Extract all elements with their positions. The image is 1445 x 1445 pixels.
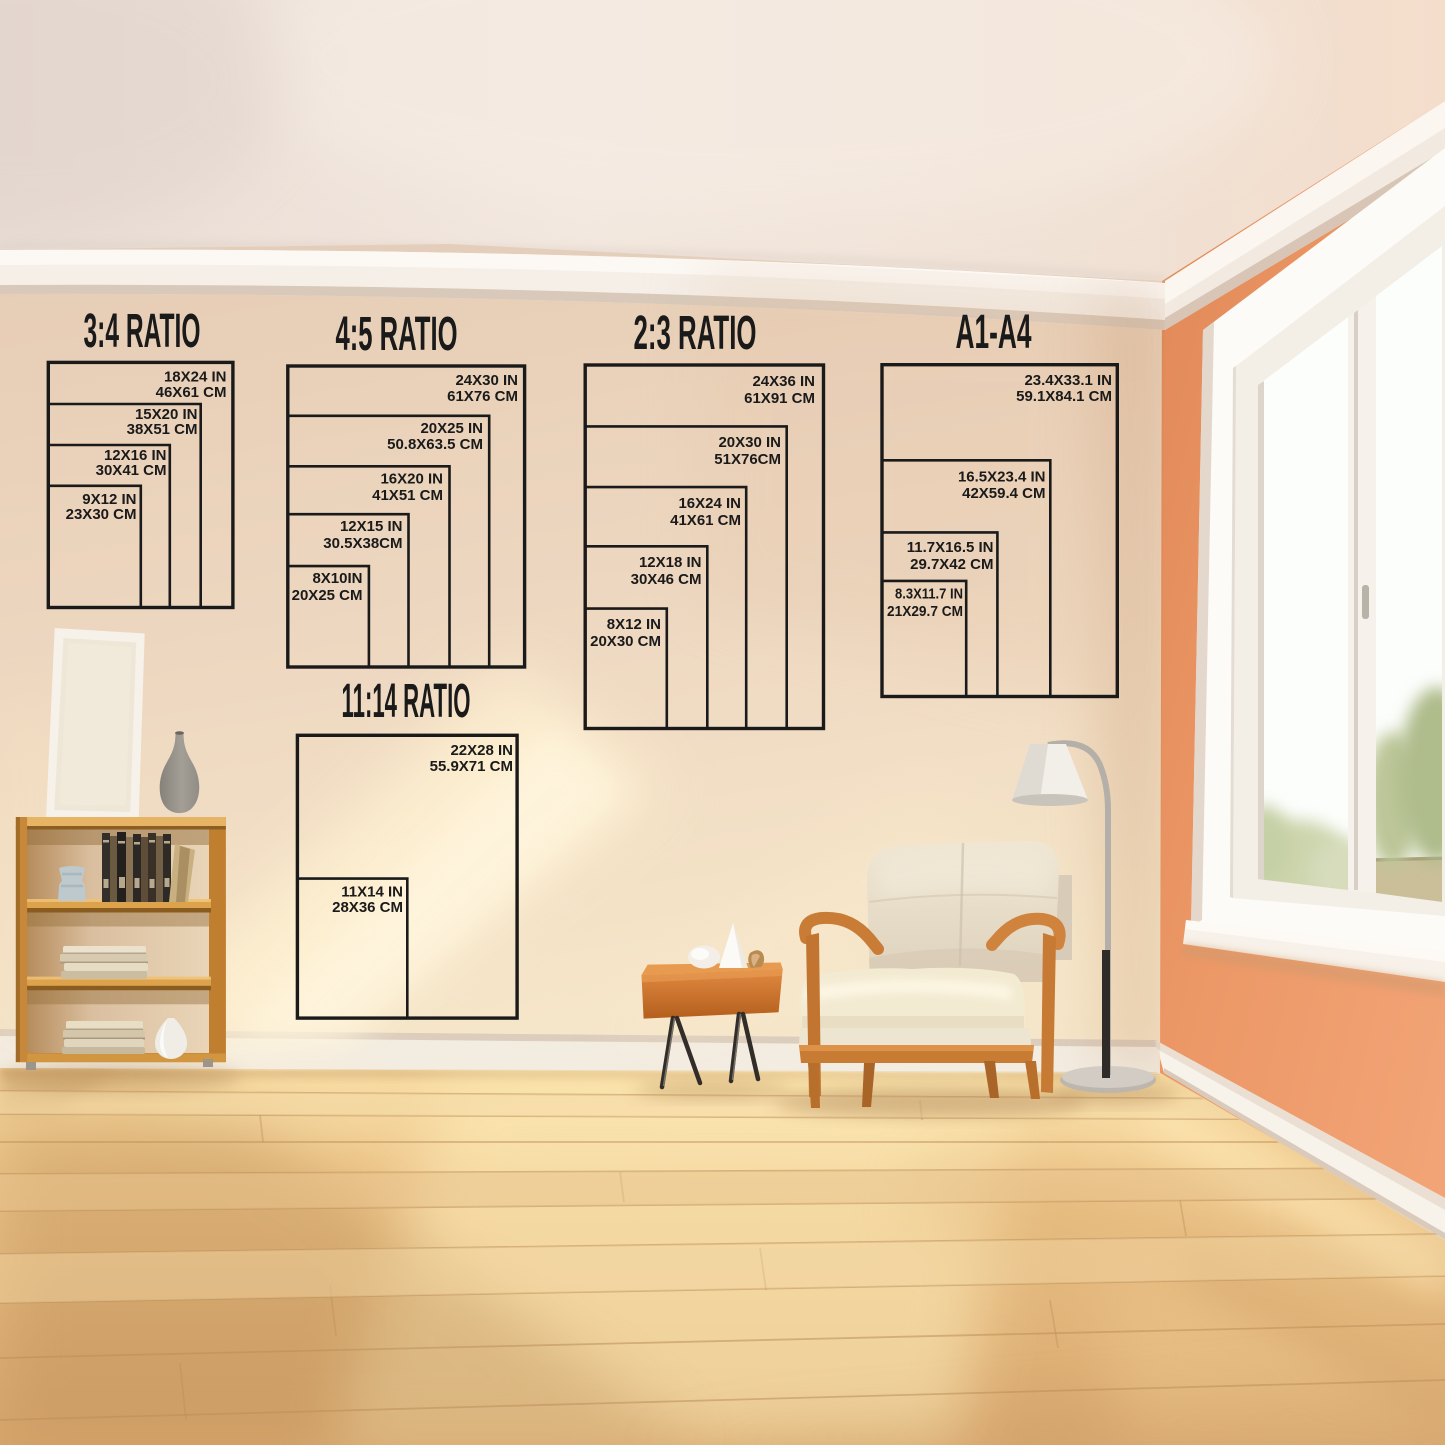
svg-text:51X76CM: 51X76CM [714,451,781,468]
svg-text:16X24 IN: 16X24 IN [678,495,741,512]
svg-text:20X25 IN: 20X25 IN [420,420,483,437]
svg-text:2:3 RATIO: 2:3 RATIO [634,307,757,360]
svg-text:8X10IN: 8X10IN [312,570,362,587]
svg-text:8X12 IN: 8X12 IN [607,616,661,633]
svg-text:55.9X71 CM: 55.9X71 CM [430,758,513,775]
svg-text:4:5 RATIO: 4:5 RATIO [336,308,458,361]
svg-text:61X76 CM: 61X76 CM [447,388,518,405]
svg-text:20X30 IN: 20X30 IN [718,434,781,451]
svg-text:23X30 CM: 23X30 CM [66,506,137,523]
svg-text:18X24 IN: 18X24 IN [164,369,227,386]
svg-text:30X46 CM: 30X46 CM [631,571,702,588]
svg-text:8.3X11.7 IN: 8.3X11.7 IN [895,586,963,603]
svg-text:41X51 CM: 41X51 CM [372,487,443,504]
svg-text:30.5X38CM: 30.5X38CM [323,535,402,552]
svg-text:12X15 IN: 12X15 IN [340,518,403,535]
svg-text:30X41 CM: 30X41 CM [96,462,167,479]
svg-text:22X28 IN: 22X28 IN [450,742,513,759]
svg-text:50.8X63.5 CM: 50.8X63.5 CM [387,436,483,453]
svg-text:28X36 CM: 28X36 CM [332,899,403,916]
svg-text:24X30 IN: 24X30 IN [455,372,518,389]
svg-text:11:14 RATIO: 11:14 RATIO [342,675,471,728]
svg-text:20X30 CM: 20X30 CM [590,633,661,650]
svg-text:46X61 CM: 46X61 CM [156,384,227,401]
svg-text:A1-A4: A1-A4 [956,306,1032,359]
svg-text:20X25 CM: 20X25 CM [292,587,363,604]
svg-text:16.5X23.4 IN: 16.5X23.4 IN [958,469,1046,486]
svg-text:41X61 CM: 41X61 CM [670,512,741,529]
svg-text:12X18 IN: 12X18 IN [639,554,702,571]
svg-text:21X29.7 CM: 21X29.7 CM [887,603,963,620]
svg-text:16X20 IN: 16X20 IN [380,471,443,488]
svg-text:23.4X33.1 IN: 23.4X33.1 IN [1024,372,1112,389]
svg-text:29.7X42 CM: 29.7X42 CM [910,556,993,573]
svg-text:38X51 CM: 38X51 CM [127,421,198,438]
svg-text:11X14 IN: 11X14 IN [341,884,403,901]
svg-text:42X59.4 CM: 42X59.4 CM [962,485,1045,502]
svg-text:3:4 RATIO: 3:4 RATIO [84,305,201,358]
svg-text:24X36 IN: 24X36 IN [752,373,815,390]
svg-text:59.1X84.1 CM: 59.1X84.1 CM [1016,388,1112,405]
svg-text:61X91 CM: 61X91 CM [744,390,815,407]
svg-text:11.7X16.5 IN: 11.7X16.5 IN [907,539,994,556]
